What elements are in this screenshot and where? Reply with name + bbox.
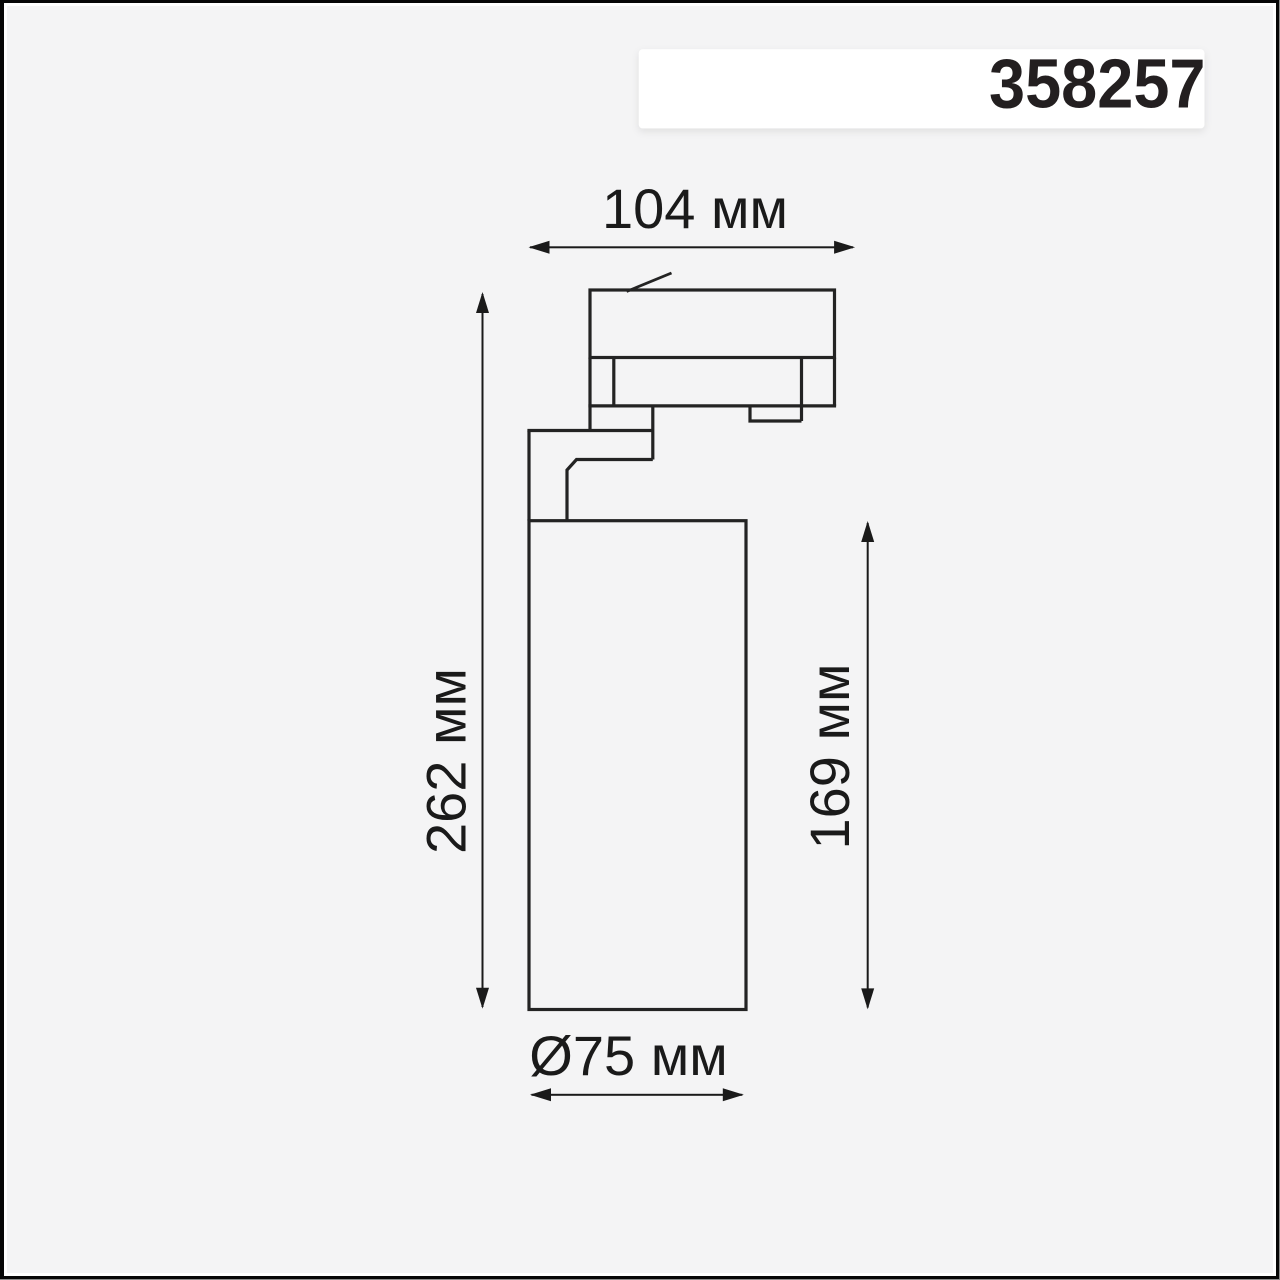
svg-text:104 мм: 104 мм [602, 177, 788, 240]
svg-text:358257: 358257 [989, 45, 1206, 123]
svg-text:Ø75 мм: Ø75 мм [529, 1024, 727, 1087]
svg-text:169 мм: 169 мм [798, 664, 861, 850]
svg-text:262 мм: 262 мм [415, 668, 478, 854]
